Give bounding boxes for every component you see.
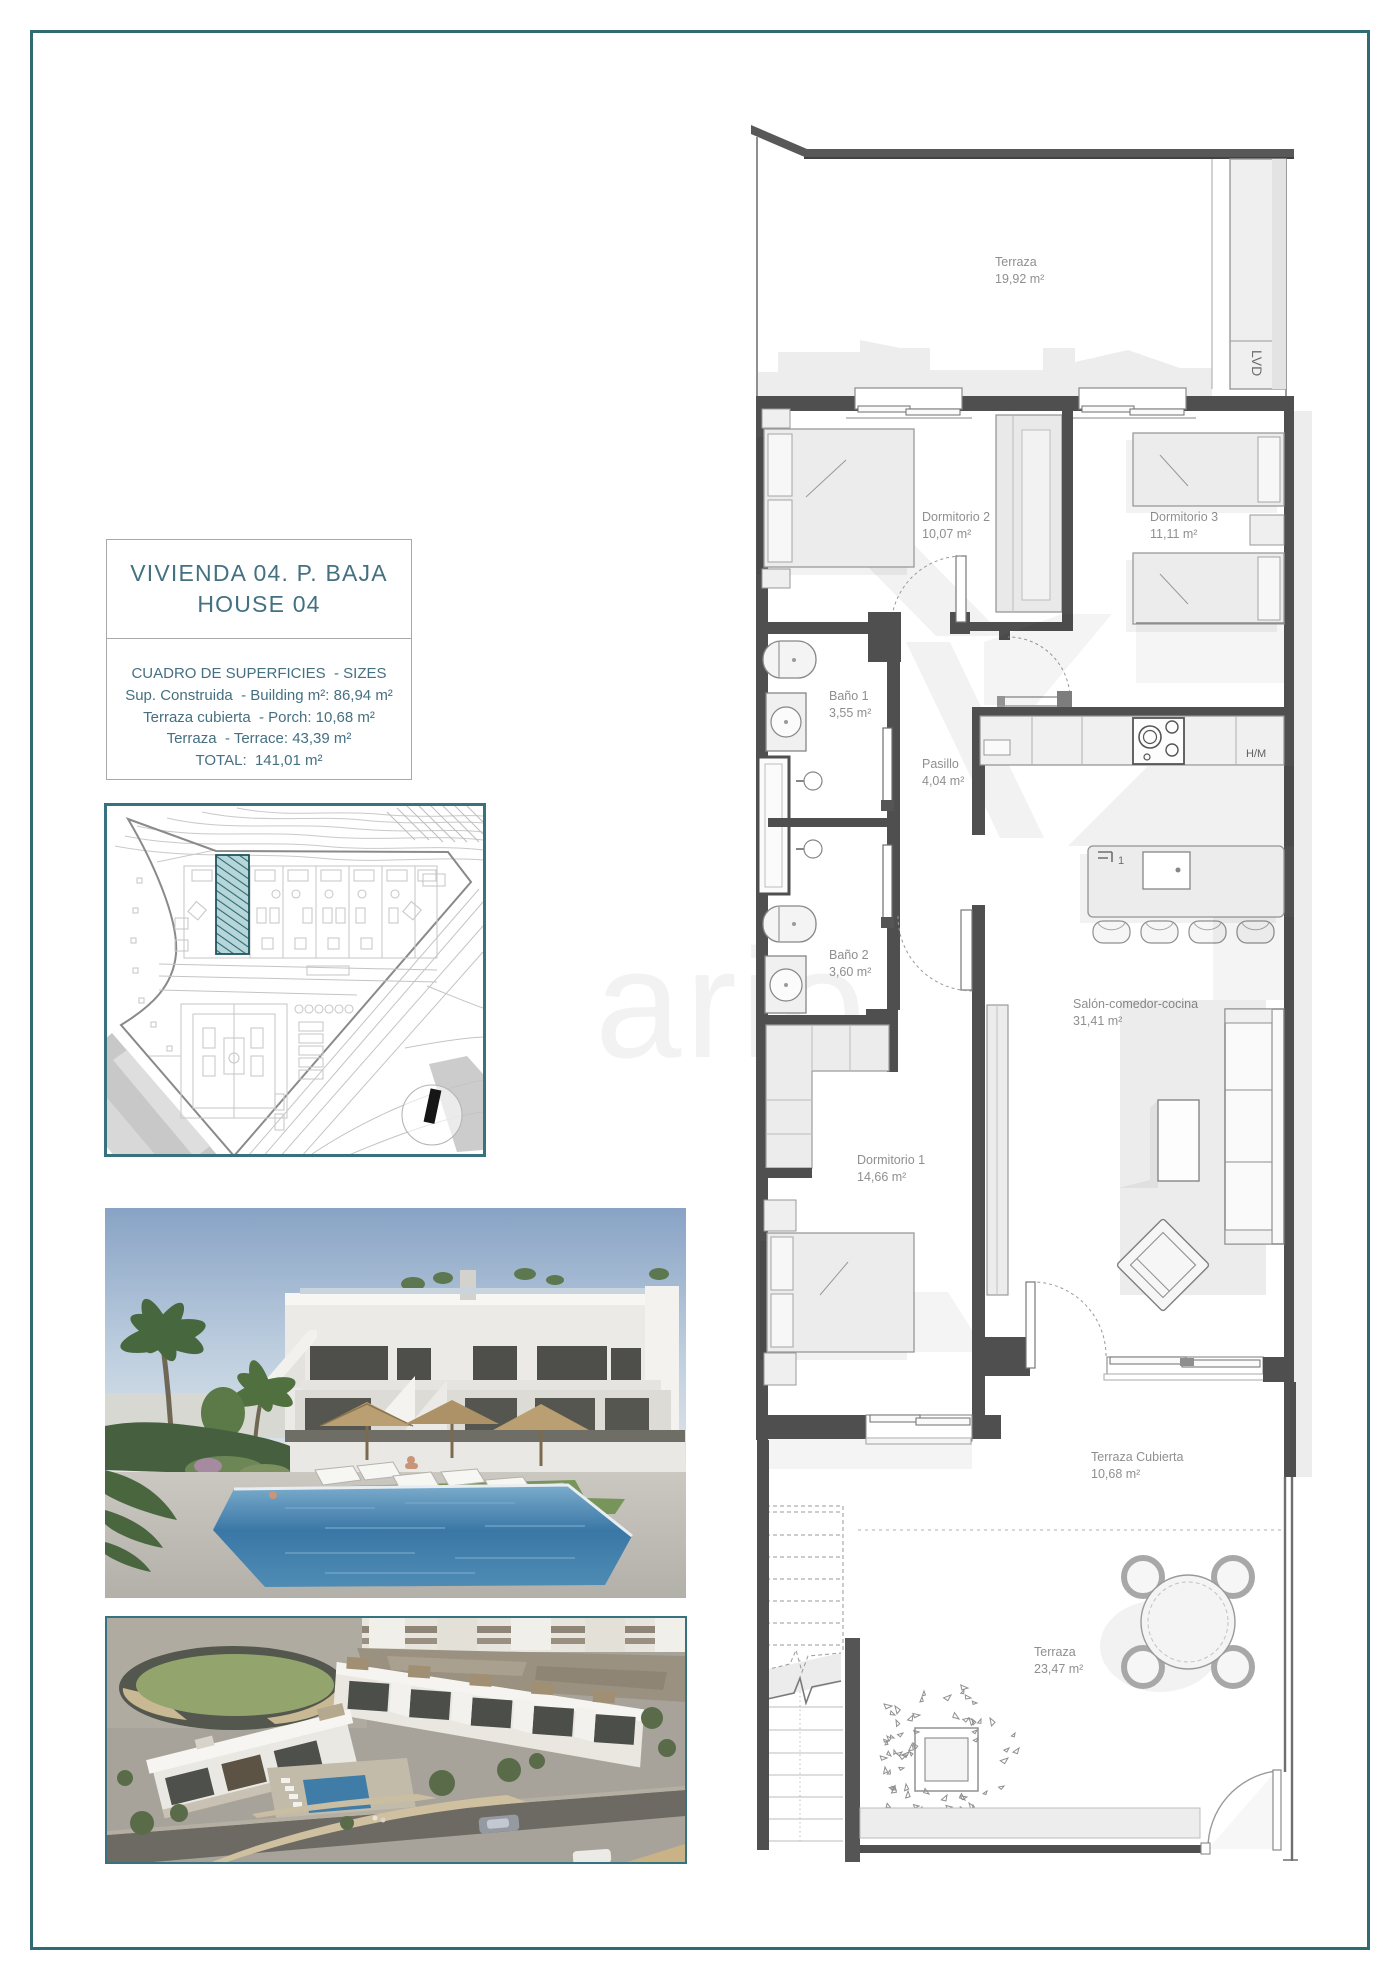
svg-text:31,41 m²: 31,41 m² [1073,1014,1122,1028]
svg-text:23,47 m²: 23,47 m² [1034,1662,1083,1676]
svg-text:H/M: H/M [1246,748,1266,760]
svg-text:10,68 m²: 10,68 m² [1091,1467,1140,1481]
svg-text:1: 1 [1118,855,1124,867]
svg-text:Dormitorio 1: Dormitorio 1 [857,1153,925,1167]
svg-text:Terraza: Terraza [995,255,1037,269]
svg-text:Baño 2: Baño 2 [829,948,869,962]
svg-text:Pasillo: Pasillo [922,757,959,771]
svg-text:Terraza: Terraza [1034,1645,1076,1659]
svg-text:10,07 m²: 10,07 m² [922,527,971,541]
svg-text:11,11 m²: 11,11 m² [1150,527,1197,541]
svg-text:3,55 m²: 3,55 m² [829,706,871,720]
svg-text:Baño 1: Baño 1 [829,689,869,703]
svg-text:Terraza Cubierta: Terraza Cubierta [1091,1450,1183,1464]
svg-text:3,60 m²: 3,60 m² [829,965,871,979]
svg-text:LVD: LVD [1249,350,1265,376]
svg-text:Dormitorio 2: Dormitorio 2 [922,510,990,524]
svg-text:19,92 m²: 19,92 m² [995,272,1044,286]
svg-text:14,66 m²: 14,66 m² [857,1170,906,1184]
svg-text:4,04 m²: 4,04 m² [922,774,964,788]
